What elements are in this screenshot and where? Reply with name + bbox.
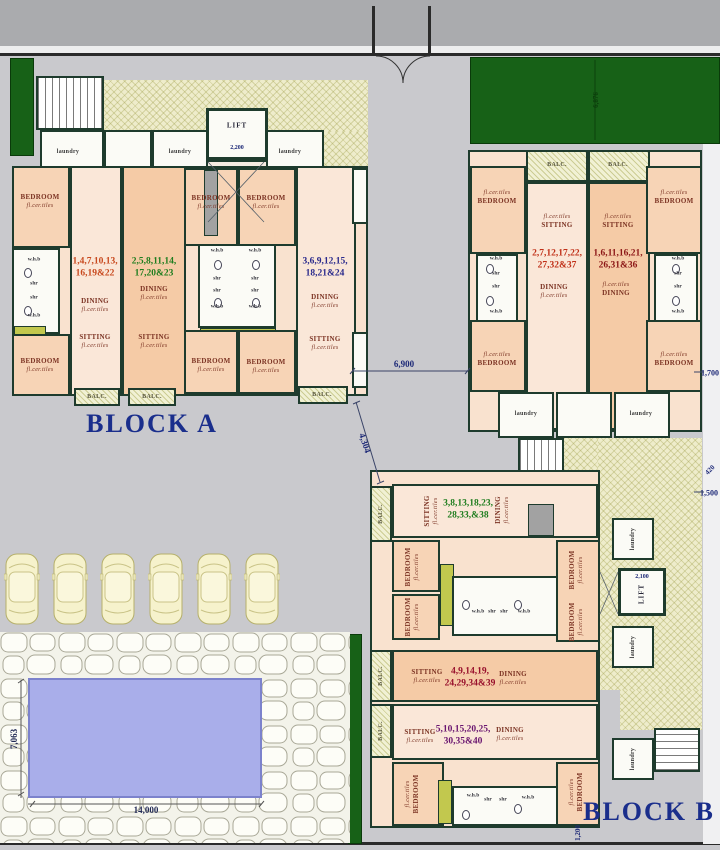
shr-label: shr xyxy=(492,283,500,290)
dim-6900: 6,900 xyxy=(394,359,414,369)
block-a-lift-shaft xyxy=(206,108,268,160)
room-label-bedroom: BEDROOMfl.cer.tiles xyxy=(568,550,586,589)
block-b-kitchen-counter-1 xyxy=(528,504,554,536)
room-label-bedroom: BEDROOMfl.cer.tiles xyxy=(404,597,422,636)
block-b-stairs-bottom xyxy=(654,728,700,772)
balcony-label: BALC. xyxy=(608,161,628,169)
block-b-bedroom-top-right xyxy=(646,166,702,254)
balcony-label: BALC. xyxy=(312,391,332,399)
whb-label: w.h.b xyxy=(518,608,531,615)
wc-icon xyxy=(486,296,494,306)
swimming-pool xyxy=(28,678,262,798)
car-4 xyxy=(148,552,184,626)
room-label-dining: DININGfl.cer.tiles xyxy=(311,293,339,311)
shr-label: shr xyxy=(674,283,682,290)
room-label-sitting: fl.cer.tilesSITTING xyxy=(602,213,633,231)
room-label-dining: DININGfl.cer.tiles xyxy=(540,283,568,301)
wc-icon xyxy=(24,268,32,278)
shr-label: shr xyxy=(499,796,507,803)
room-label-dining: DININGfl.cer.tiles xyxy=(81,297,109,315)
shr-label: shr xyxy=(484,796,492,803)
shr-label: shr xyxy=(30,280,38,287)
room-label-dining: fl.cer.tilesDINING xyxy=(602,281,630,299)
whb-label: w.h.b xyxy=(672,255,685,262)
room-label-bedroom: BEDROOMfl.cer.tiles xyxy=(568,602,586,641)
dim-1700: 1,700 xyxy=(701,369,719,378)
lift-label: LIFT xyxy=(637,584,646,604)
site-boundary-top xyxy=(0,53,720,56)
unit-label-b3: 3,8,13,18,23,28,33,&38 xyxy=(443,498,493,523)
car-6 xyxy=(244,552,280,626)
block-b-bedroom-top-left xyxy=(470,166,526,254)
room-label-bedroom: BEDROOMfl.cer.tiles xyxy=(404,547,422,586)
room-label-bedroom: fl.cer.tilesBEDROOM xyxy=(404,774,422,813)
wc-icon xyxy=(514,804,522,814)
room-label-sitting: SITTINGfl.cer.tiles xyxy=(411,668,442,686)
block-a-side-room-bottom xyxy=(352,332,368,388)
laundry-label: laundry xyxy=(279,148,301,156)
wc-icon xyxy=(462,600,470,610)
balcony-label: BALC. xyxy=(377,666,385,686)
shr-label: shr xyxy=(213,287,221,294)
room-label-sitting: SITTINGfl.cer.tiles xyxy=(404,728,435,746)
car-2 xyxy=(52,552,88,626)
block-b-entry-hall xyxy=(556,392,612,438)
block-b-counter-bot xyxy=(438,780,452,824)
wc-icon xyxy=(672,296,680,306)
room-label-sitting: fl.cer.tilesSITTING xyxy=(541,213,572,231)
whb-label: w.h.b xyxy=(249,247,262,254)
block-a-bath-center xyxy=(198,244,276,328)
dim-lift-a: 2,200 xyxy=(230,145,244,151)
room-label-bedroom: fl.cer.tilesBEDROOM xyxy=(477,189,516,207)
unit-label-b4: 4,9,14,19,24,29,34&39 xyxy=(445,666,496,691)
shr-label: shr xyxy=(674,270,682,277)
shr-label: shr xyxy=(251,275,259,282)
wc-icon xyxy=(214,260,222,270)
shr-label: shr xyxy=(30,294,38,301)
lawn-strip-patio xyxy=(348,634,362,844)
car-3 xyxy=(100,552,136,626)
unit-label-b2: 1,6,11,16,21,26,31&36 xyxy=(593,248,642,273)
unit-label-a1: 1,4,7,10,13,16,19&22 xyxy=(72,256,117,281)
block-a-unit2-column xyxy=(122,166,186,396)
unit-label-b5: 5,10,15,20,25,30,35&40 xyxy=(436,724,491,749)
whb-label: w.h.b xyxy=(522,794,535,801)
room-label-dining: DININGfl.cer.tiles xyxy=(496,726,524,744)
floor-plan: laundry laundry laundry LIFT 2,200 BEDRO… xyxy=(0,0,720,850)
room-label-dining: DININGfl.cer.tiles xyxy=(494,496,512,524)
whb-label: w.h.b xyxy=(490,255,503,262)
laundry-label: laundry xyxy=(629,528,637,550)
shr-label: shr xyxy=(488,608,496,615)
room-label-sitting: SITTINGfl.cer.tiles xyxy=(309,335,340,353)
laundry-label: laundry xyxy=(515,410,537,418)
unit-label-a2: 2,5,8,11,14,17,20&23 xyxy=(132,256,177,281)
block-a-title: BLOCK A xyxy=(86,409,218,439)
room-label-bedroom: BEDROOMfl.cer.tiles xyxy=(191,194,230,212)
block-a-side-room-top xyxy=(352,168,368,224)
shr-label: shr xyxy=(251,287,259,294)
laundry-label: laundry xyxy=(169,148,191,156)
block-b-title: BLOCK B xyxy=(583,797,715,827)
gate-post-right xyxy=(428,6,431,56)
balcony-label: BALC. xyxy=(547,161,567,169)
shr-label: shr xyxy=(213,275,221,282)
room-label-bedroom: BEDROOMfl.cer.tiles xyxy=(20,193,59,211)
dim-lift-b: 2,100 xyxy=(635,574,649,580)
room-label-bedroom: BEDROOMfl.cer.tiles xyxy=(20,357,59,375)
balcony-label: BALC. xyxy=(377,504,385,524)
block-a-unit1-column xyxy=(70,166,122,396)
room-label-dining: DININGfl.cer.tiles xyxy=(499,670,527,688)
car-5 xyxy=(196,552,232,626)
balcony-label: BALC. xyxy=(142,393,162,401)
whb-label: w.h.b xyxy=(249,303,262,310)
lift-label: LIFT xyxy=(227,121,247,130)
block-b-court-patch xyxy=(620,690,702,730)
top-road-band xyxy=(0,0,720,46)
balcony-label: BALC. xyxy=(377,721,385,741)
block-a-stairs xyxy=(36,76,104,130)
room-label-bedroom: fl.cer.tilesBEDROOM xyxy=(654,189,693,207)
shr-label: shr xyxy=(500,608,508,615)
dim-7063: 7,063 xyxy=(9,729,19,749)
room-label-bedroom: BEDROOMfl.cer.tiles xyxy=(191,357,230,375)
laundry-label: laundry xyxy=(629,748,637,770)
whb-label: w.h.b xyxy=(672,308,685,315)
room-label-sitting: SITTINGfl.cer.tiles xyxy=(423,495,441,526)
room-label-sitting: SITTINGfl.cer.tiles xyxy=(138,333,169,351)
room-label-bedroom: BEDROOMfl.cer.tiles xyxy=(246,194,285,212)
shr-label: shr xyxy=(492,270,500,277)
unit-label-a3: 3,6,9,12,15,18,21&24 xyxy=(302,256,347,281)
car-1 xyxy=(4,552,40,626)
laundry-label: laundry xyxy=(630,410,652,418)
whb-label: w.h.b xyxy=(211,303,224,310)
laundry-label: laundry xyxy=(629,636,637,658)
block-a-unit3-column xyxy=(296,166,356,396)
whb-label: w.h.b xyxy=(28,256,41,263)
whb-label: w.h.b xyxy=(28,312,41,319)
unit-label-b1: 2,7,12,17,22,27,32&37 xyxy=(532,248,582,273)
whb-label: w.h.b xyxy=(467,792,480,799)
whb-label: w.h.b xyxy=(472,608,485,615)
laundry-label: laundry xyxy=(57,148,79,156)
room-label-sitting: SITTINGfl.cer.tiles xyxy=(79,333,110,351)
gate-post-left xyxy=(372,6,375,56)
balcony-label: BALC. xyxy=(87,393,107,401)
dim-1200: 1,200 xyxy=(574,825,582,841)
room-label-bedroom: fl.cer.tilesBEDROOM xyxy=(477,351,516,369)
wc-icon xyxy=(252,260,260,270)
dim-14000: 14,000 xyxy=(134,805,159,815)
dim-6876: 6,876 xyxy=(592,92,600,108)
dim-4304: 4,304 xyxy=(357,432,373,454)
whb-label: w.h.b xyxy=(211,247,224,254)
room-label-bedroom: fl.cer.tilesBEDROOM xyxy=(654,351,693,369)
room-label-bedroom: BEDROOMfl.cer.tiles xyxy=(246,358,285,376)
dim-1500: 1,500 xyxy=(700,489,718,498)
room-label-dining: DININGfl.cer.tiles xyxy=(140,285,168,303)
whb-label: w.h.b xyxy=(490,308,503,315)
lawn-strip-left xyxy=(10,58,34,156)
wc-icon xyxy=(462,810,470,820)
